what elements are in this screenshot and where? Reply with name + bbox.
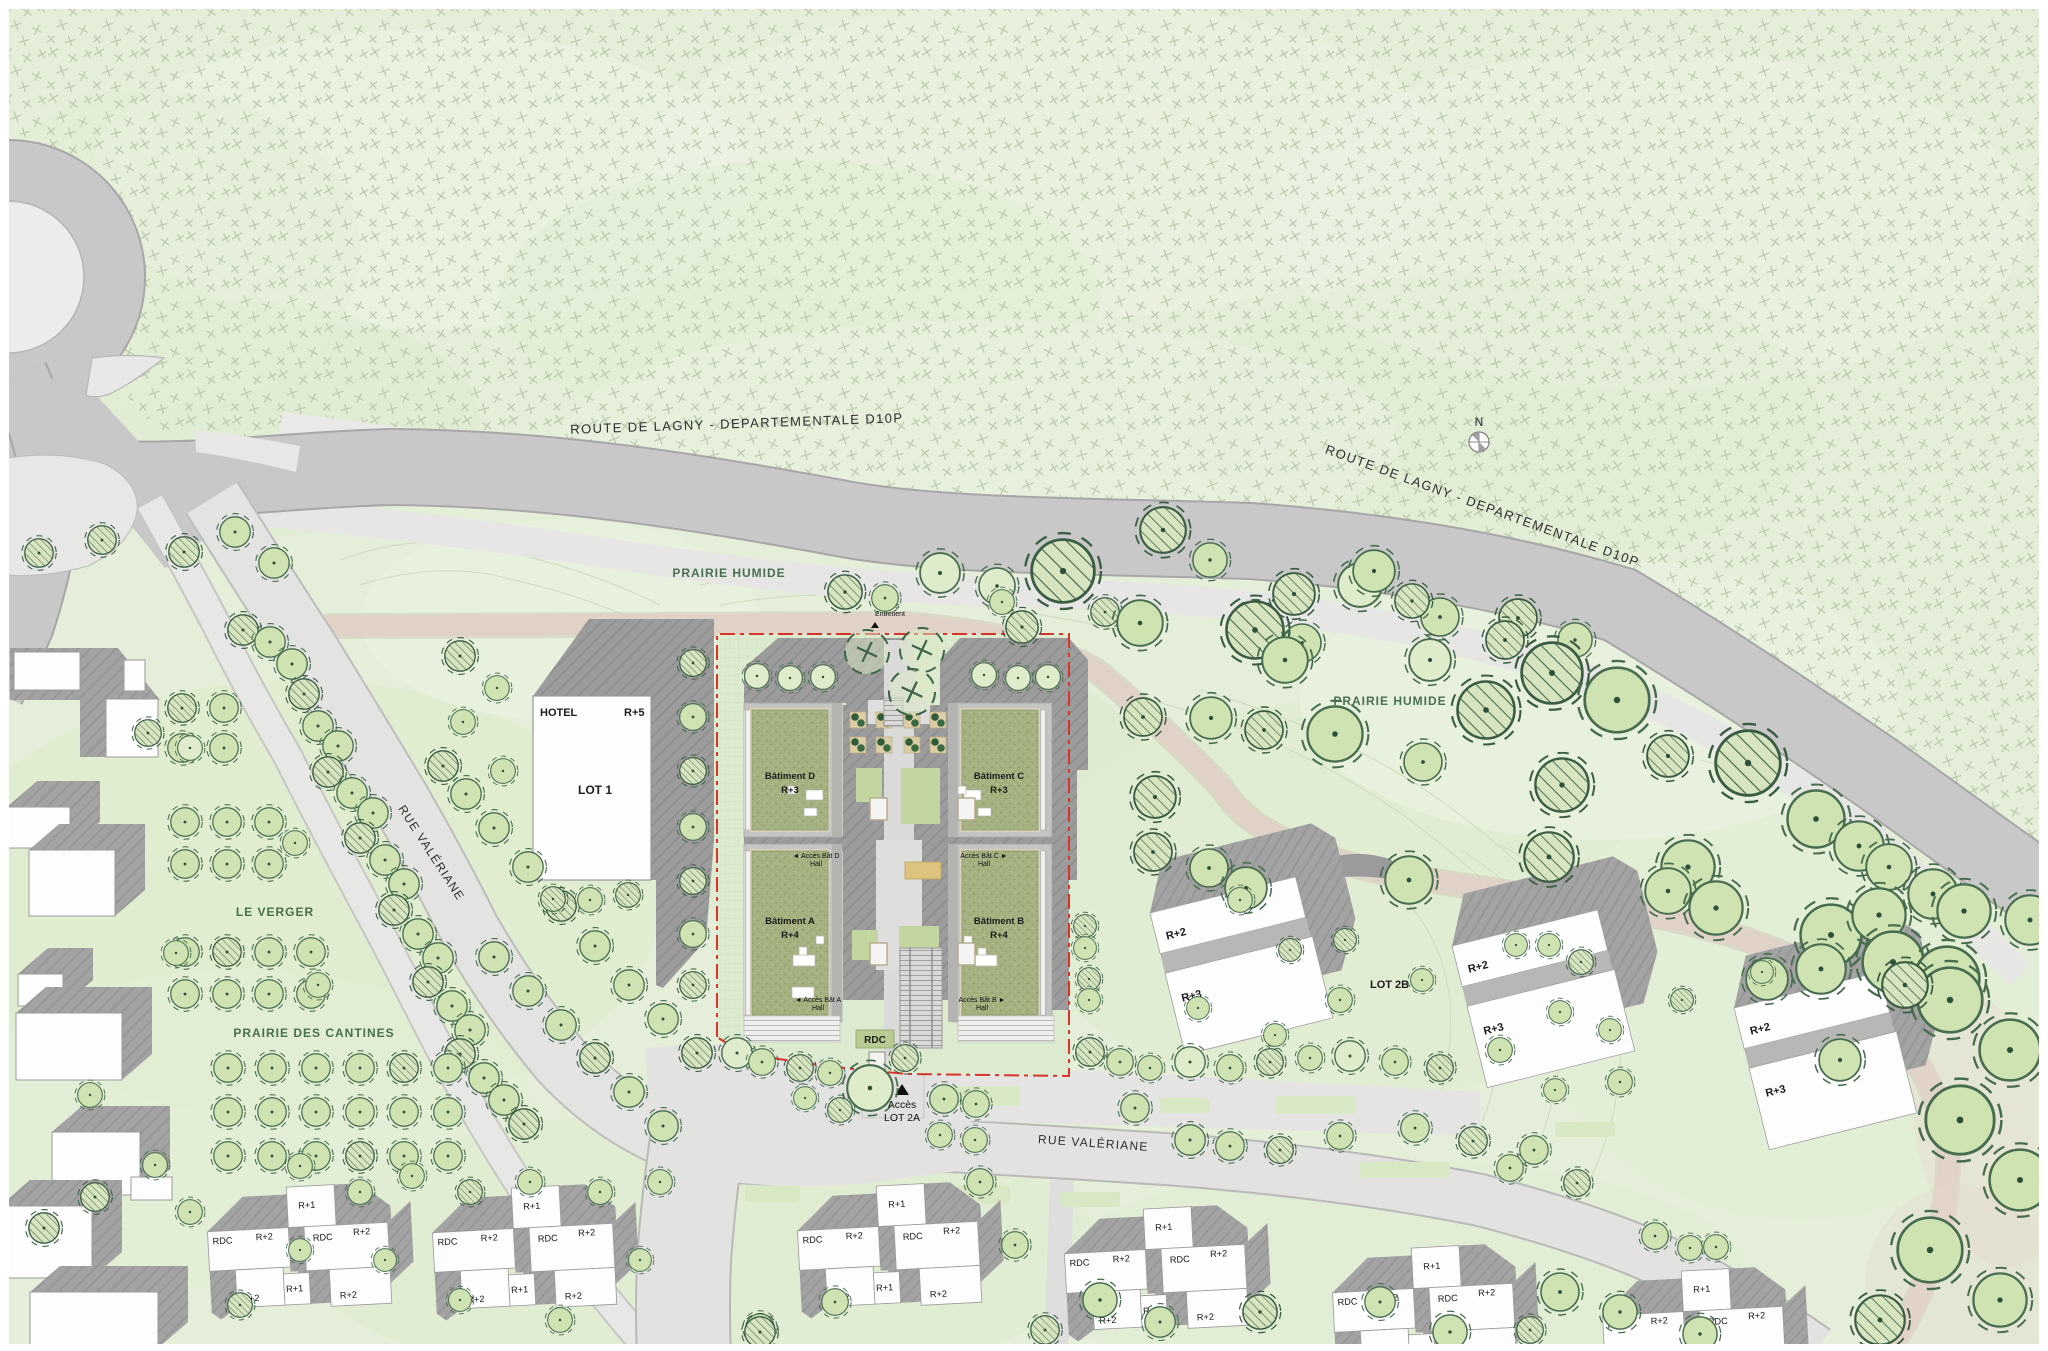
svg-text:R+2: R+2 [565, 1291, 583, 1302]
svg-text:RDC: RDC [1438, 1293, 1459, 1304]
svg-text:R+1: R+1 [888, 1199, 906, 1210]
svg-text:R+2: R+2 [943, 1225, 961, 1236]
svg-text:RDC: RDC [1337, 1296, 1358, 1307]
svg-text:Bâtiment B: Bâtiment B [974, 916, 1024, 927]
svg-text:LE VERGER: LE VERGER [236, 905, 314, 919]
svg-text:R+1: R+1 [523, 1201, 541, 1212]
svg-text:◄ Accès Bât D: ◄ Accès Bât D [792, 853, 839, 860]
svg-text:R+1: R+1 [1693, 1284, 1711, 1295]
svg-text:RDC: RDC [903, 1231, 924, 1242]
svg-text:R+2: R+2 [1478, 1287, 1496, 1298]
svg-text:LOT 2B: LOT 2B [1370, 979, 1409, 991]
svg-text:R+3: R+3 [781, 785, 799, 796]
svg-text:R+2: R+2 [845, 1230, 863, 1241]
svg-text:Hall: Hall [978, 861, 991, 868]
svg-text:RDC: RDC [437, 1236, 458, 1247]
svg-text:R+3: R+3 [990, 785, 1008, 796]
svg-text:R+1: R+1 [511, 1284, 529, 1295]
svg-text:PRAIRIE DES CANTINES: PRAIRIE DES CANTINES [233, 1026, 394, 1040]
svg-text:R+1: R+1 [1423, 1261, 1441, 1272]
svg-text:R+2: R+2 [1197, 1312, 1215, 1323]
svg-text:R+2: R+2 [1650, 1315, 1668, 1326]
svg-text:PRAIRIE HUMIDE: PRAIRIE HUMIDE [1333, 694, 1446, 708]
svg-text:R+5: R+5 [624, 707, 645, 719]
svg-text:LOT 1: LOT 1 [578, 783, 612, 797]
svg-text:RDC: RDC [212, 1235, 233, 1246]
svg-text:Accès Bât B ►: Accès Bât B ► [958, 997, 1005, 1004]
svg-text:R+2: R+2 [353, 1226, 371, 1237]
svg-text:R+2: R+2 [1112, 1253, 1130, 1264]
svg-text:R+1: R+1 [286, 1283, 304, 1294]
svg-text:R+2: R+2 [255, 1231, 273, 1242]
svg-text:PRAIRIE HUMIDE: PRAIRIE HUMIDE [672, 566, 785, 580]
svg-text:◄ Accès Bât A: ◄ Accès Bât A [795, 997, 842, 1004]
svg-text:R+2: R+2 [1748, 1310, 1766, 1321]
svg-text:Hall: Hall [976, 1005, 989, 1012]
svg-text:Hall: Hall [810, 861, 823, 868]
svg-text:Hall: Hall [812, 1005, 825, 1012]
svg-text:Bâtiment D: Bâtiment D [765, 771, 815, 782]
svg-text:R+2: R+2 [578, 1227, 596, 1238]
svg-text:R+2: R+2 [480, 1232, 498, 1243]
svg-text:R+4: R+4 [781, 930, 799, 941]
svg-text:RDC: RDC [864, 1035, 886, 1046]
svg-text:R+4: R+4 [990, 930, 1008, 941]
svg-text:Bâtiment A: Bâtiment A [765, 916, 815, 927]
svg-text:R+2: R+2 [930, 1289, 948, 1300]
svg-text:R+1: R+1 [298, 1200, 316, 1211]
svg-text:RDC: RDC [1170, 1254, 1191, 1265]
svg-text:Accès Bât C ►: Accès Bât C ► [960, 853, 1007, 860]
svg-text:LOT 2A: LOT 2A [884, 1112, 920, 1124]
svg-text:R+2: R+2 [1210, 1248, 1228, 1259]
svg-text:Entretient: Entretient [875, 611, 905, 618]
svg-text:RDC: RDC [802, 1234, 823, 1245]
svg-text:R+2: R+2 [340, 1290, 358, 1301]
svg-text:R+1: R+1 [1155, 1222, 1173, 1233]
svg-text:Bâtiment C: Bâtiment C [974, 771, 1024, 782]
svg-text:RDC: RDC [538, 1233, 559, 1244]
svg-text:RDC: RDC [313, 1232, 334, 1243]
svg-text:RDC: RDC [1069, 1257, 1090, 1268]
svg-text:N: N [1475, 415, 1484, 429]
svg-text:HOTEL: HOTEL [540, 707, 578, 719]
svg-text:R+1: R+1 [876, 1282, 894, 1293]
